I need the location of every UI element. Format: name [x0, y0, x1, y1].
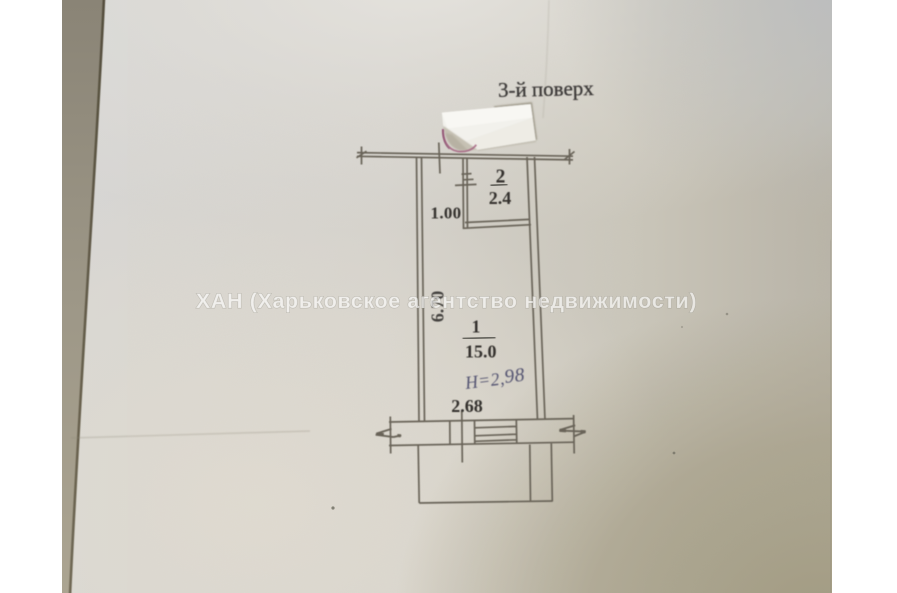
- svg-text:1.00: 1.00: [431, 204, 462, 223]
- svg-text:15.0: 15.0: [465, 342, 497, 362]
- svg-text:3-й поверх: 3-й поверх: [498, 76, 595, 102]
- svg-text:2.4: 2.4: [489, 188, 512, 208]
- svg-text:ХАН (Харьковское агентство нед: ХАН (Харьковское агентство недвижимости): [196, 289, 697, 313]
- svg-text:1: 1: [472, 317, 481, 337]
- svg-text:2.68: 2.68: [451, 396, 483, 416]
